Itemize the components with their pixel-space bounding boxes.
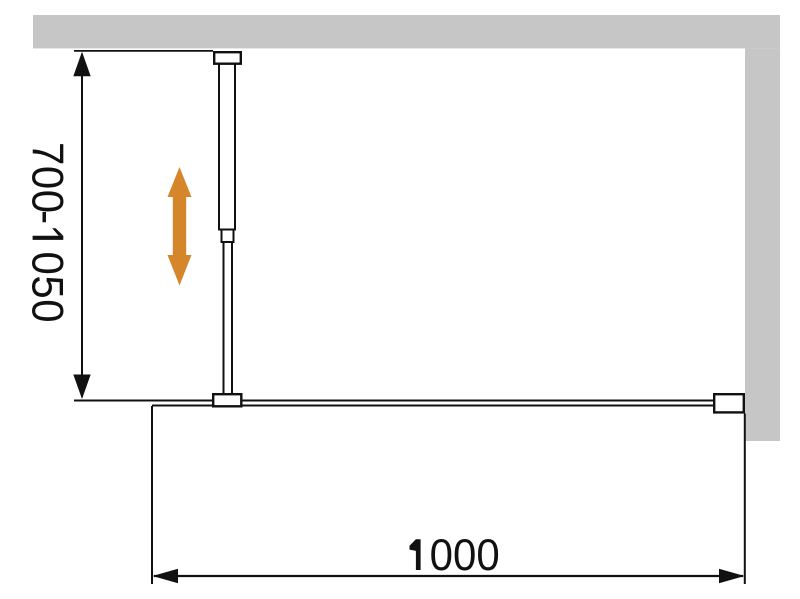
svg-text:050: 050: [22, 252, 71, 324]
svg-text:700: 700: [22, 142, 71, 214]
svg-text:000: 000: [430, 531, 500, 580]
svg-text:-: -: [22, 210, 71, 224]
